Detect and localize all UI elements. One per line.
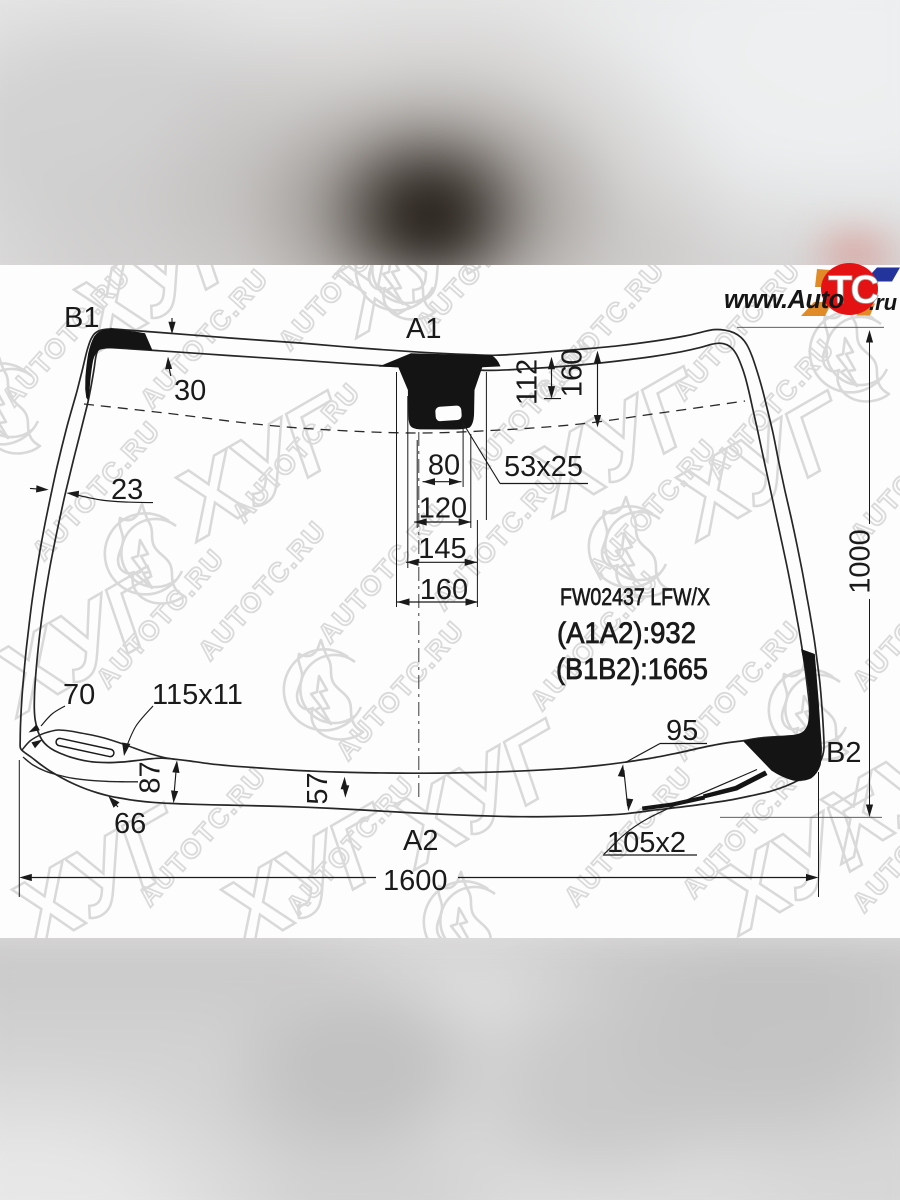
svg-text:160: 160 — [420, 574, 468, 606]
svg-text:B2: B2 — [826, 737, 861, 769]
svg-text:70: 70 — [63, 679, 95, 711]
svg-text:A1: A1 — [406, 313, 441, 345]
svg-text:80: 80 — [428, 450, 460, 482]
svg-text:B1: B1 — [64, 302, 99, 334]
svg-text:115x11: 115x11 — [152, 679, 243, 711]
svg-text:23: 23 — [111, 474, 143, 506]
svg-text:A2: A2 — [403, 825, 438, 857]
svg-text:112: 112 — [512, 359, 544, 405]
svg-text:120: 120 — [419, 493, 467, 525]
svg-text:.ru: .ru — [869, 290, 898, 315]
svg-text:1600: 1600 — [383, 865, 448, 897]
svg-text:FW02437 LFW/X: FW02437 LFW/X — [560, 584, 710, 611]
svg-text:30: 30 — [174, 375, 206, 407]
svg-text:(B1B2):1665: (B1B2):1665 — [556, 653, 708, 686]
svg-text:95: 95 — [666, 715, 698, 747]
svg-text:57: 57 — [302, 772, 334, 804]
svg-text:(A1A2):932: (A1A2):932 — [557, 617, 696, 650]
svg-text:87: 87 — [135, 761, 167, 793]
svg-text:www.Auto: www.Auto — [724, 286, 844, 314]
svg-text:105x2: 105x2 — [607, 827, 686, 859]
svg-text:160: 160 — [557, 349, 589, 397]
svg-text:145: 145 — [418, 533, 466, 565]
svg-text:66: 66 — [114, 808, 146, 840]
svg-text:53x25: 53x25 — [504, 451, 583, 483]
svg-text:1000: 1000 — [845, 529, 877, 594]
